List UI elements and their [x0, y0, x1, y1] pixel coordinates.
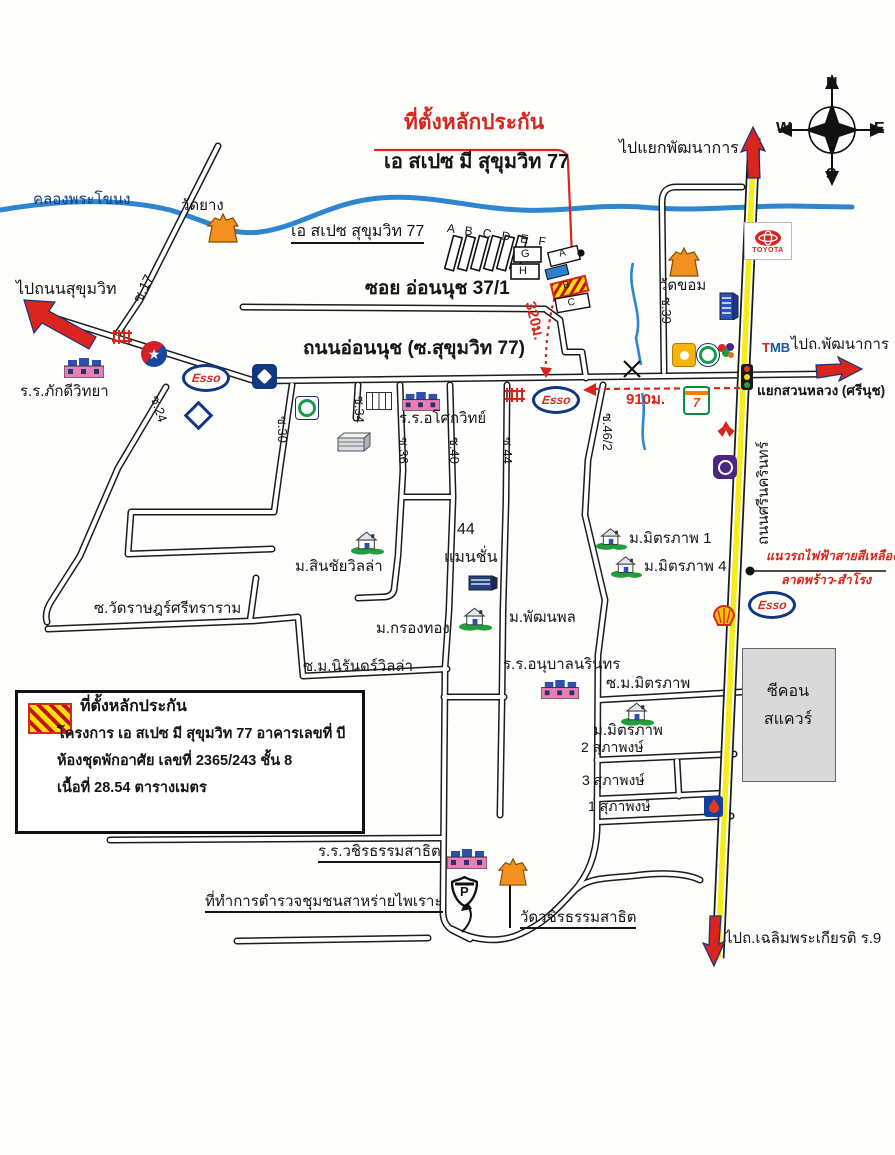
arrow-north-srinagarindra: [741, 127, 765, 178]
compass-n: N: [826, 76, 838, 93]
mitraphap-label: ม.มิตรภาพ: [593, 723, 663, 739]
scb-bank-icon: [713, 455, 737, 479]
distance-910m-label: 910ม.: [626, 392, 665, 408]
tmb-mb: MB: [770, 340, 790, 355]
mrt-yellow-line-label2: ลาดพร้าว-สำโรง: [781, 574, 871, 587]
legend-line2: ห้องชุดพักอาศัย เลขที่ 2365/243 ชั้น 8: [57, 754, 292, 769]
krungsri-bank-icon: [672, 343, 696, 367]
police-office-label: ที่ทำการตำรวจชุมชนสาหร่ายไพเราะ: [205, 894, 443, 913]
soi39-label: ซ.39: [659, 297, 673, 324]
a-space-label: เอ สเปซ สุขุมวิท 77: [291, 224, 424, 244]
housing-estate-icon: [611, 554, 642, 578]
police-badge-letter: P: [460, 885, 469, 899]
building-3d-icon: [336, 432, 372, 452]
mitsubishi-icon: [716, 421, 736, 439]
temple-icon: [666, 247, 702, 277]
suphapong2-label: 2 สุภาพงษ์: [581, 740, 644, 755]
collateral-title: ที่ตั้งหลักประกัน: [404, 112, 544, 134]
onnut-road-label: ถนนอ่อนนุช (ซ.สุขุมวิท 77): [303, 339, 525, 359]
ptt-station-icon: [704, 796, 723, 817]
temple-icon: [205, 213, 241, 243]
compass-w: W: [776, 121, 791, 138]
mrt-yellow-line-label1: แนวรถไฟฟ้าสายสีเหลือง: [766, 550, 895, 563]
wat-wachiratham-label: วัดวชิรธรรมสาธิต: [520, 910, 636, 929]
project-title: เอ สเปซ มี สุขุมวิท 77: [384, 152, 569, 173]
pattanapol-label: ม.พัฒนพล: [509, 610, 576, 626]
seven-label: 7: [693, 395, 700, 410]
housing-estate-icon: [351, 529, 384, 555]
footbridge-icon: [111, 329, 133, 345]
tree-icon: [577, 249, 584, 256]
mitraphap4-label: ม.มิตรภาพ 4: [644, 559, 726, 575]
compass-s: S: [826, 167, 837, 184]
asoke-school-label: ร.ร.อโศกวิทย์: [399, 411, 486, 427]
map-vector-layer: [0, 0, 895, 1155]
building-g-label: G: [521, 249, 530, 261]
school-icon: [447, 849, 487, 869]
suphapong3-label: 3 สุภาพงษ์: [582, 773, 645, 788]
arrow-to-phatthanakan: [816, 357, 862, 381]
esso-label: Esso: [541, 393, 572, 407]
highrise-icon: [719, 290, 739, 320]
kasikorn-bank-icon: [696, 343, 720, 367]
shell-station-icon: [712, 605, 736, 627]
krongthong-label: ม.กรองทอง: [376, 621, 450, 637]
wat-yang-label: วัดยาง: [181, 198, 224, 214]
seven-eleven-icon: 7: [683, 386, 710, 415]
direction-phatthanakan-junction: ไปแยกพัฒนาการ: [619, 141, 739, 158]
srinagarindra-road: [718, 138, 754, 958]
esso-station-icon: Esso: [532, 386, 580, 414]
khlong-label: คลองพระโขนง: [33, 192, 130, 208]
compass-e: E: [874, 121, 885, 138]
soi46-2-label: ซ.46/2: [600, 413, 614, 451]
housing-estate-icon: [596, 526, 627, 550]
soi30-label: ซ.30: [275, 416, 289, 443]
esso-label: Esso: [757, 598, 788, 612]
wachiratham-school-label: ร.ร.วชิรธรรมสาธิต: [318, 844, 441, 863]
toyota-label: TOYOTA: [752, 247, 784, 254]
traffic-light-icon: [741, 364, 753, 390]
kasikorn-bank-icon: [295, 396, 319, 420]
soi-onnut-37-1-label: ซอย อ่อนนุช 37/1: [365, 279, 510, 299]
legend-title: ที่ตั้งหลักประกัน: [80, 699, 187, 716]
unit-c-label: C: [567, 298, 576, 310]
police-badge-icon: P: [451, 876, 478, 907]
soi36-label: ซ.36: [396, 437, 410, 464]
pakdee-school-label: ร.ร.ภักดีวิทยา: [20, 384, 109, 400]
tmb-bank-label: TMB: [762, 341, 790, 355]
direction-sukhumvit: ไปถนนสุขุมวิท: [16, 282, 117, 299]
srinagarindra-road-label: ถนนศรีนครินทร์: [756, 441, 772, 545]
building-h-label: H: [519, 266, 527, 278]
school-icon: [402, 392, 440, 411]
direction-chalermprakiat: ไปถ.เฉลิมพระเกียรติ ร.9: [725, 931, 881, 947]
mansion44-label2: แมนชั่น: [444, 550, 498, 567]
bangkok-bank-icon: [252, 364, 277, 389]
sinchai-villa-label: ม.สินชัยวิลล่า: [295, 559, 383, 575]
soi34-label: ซ.34: [352, 396, 366, 423]
seacon-label-line2: สแควร์: [742, 712, 834, 729]
esso-station-icon: Esso: [182, 364, 230, 392]
seacon-label-line1: ซีคอน: [742, 684, 834, 701]
footbridge-icon: [504, 387, 526, 403]
suphapong1-label: 1 สุภาพงษ์: [588, 799, 651, 814]
wat-khom-label: วัดขอม: [659, 278, 706, 294]
legend-line3: เนื้อที่ 28.54 ตารางเมตร: [57, 781, 207, 796]
suan-luang-junction-label: แยกสวนหลวง (ศรีนุช): [757, 384, 885, 398]
mansion44-label1: 44: [457, 522, 475, 539]
mansion-building-icon: [468, 574, 498, 592]
school-icon: [64, 358, 104, 378]
soi40-label: ซ.40: [447, 437, 461, 464]
direction-phatthanakan: ไปถ.พัฒนาการ: [791, 337, 889, 353]
caltex-station-icon: ★: [141, 341, 167, 367]
map-canvas: Esso Esso Esso ★ 7 TOYOTA P ซีคอน สแควร์…: [0, 0, 895, 1155]
mitraphap1-label: ม.มิตรภาพ 1: [629, 531, 711, 547]
soi-wat-rat-label: ซ.วัดราษฎร์ศรีทราราม: [94, 601, 241, 617]
soi-mitraphap-label: ซ.ม.มิตรภาพ: [606, 676, 690, 692]
esso-label: Esso: [191, 371, 222, 385]
school-icon: [541, 680, 579, 699]
esso-station-icon: Esso: [748, 591, 796, 619]
temple-icon: [496, 858, 530, 886]
anuban-school-label: ร.ร.อนุบาลนรินทร: [503, 657, 620, 673]
legend-line1: โครงการ เอ สเปซ มี สุขุมวิท 77 อาคารเลขท…: [57, 727, 346, 742]
soi44-label: ซ.44: [500, 437, 514, 464]
townhouse-block-icon: [366, 392, 392, 410]
housing-estate-icon: [459, 605, 492, 631]
soi-nirand-label: ซ.ม.นิรันดร์วิลล่า: [303, 659, 413, 675]
tmb-t: T: [762, 340, 770, 355]
toyota-dealer-icon: TOYOTA: [744, 222, 792, 260]
